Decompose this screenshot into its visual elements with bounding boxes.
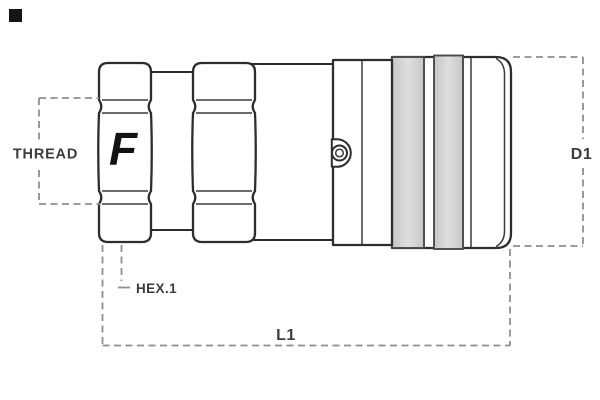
drawing-canvas: F [0,0,600,400]
hex-label: HEX.1 [136,281,177,296]
diameter-dimension: D1 [513,57,592,246]
locking-band-2 [434,56,463,250]
coupling-body: F [98,56,511,250]
corner-marker [9,9,22,22]
hex-nut-2 [192,63,256,242]
l1-label: L1 [276,327,296,344]
locking-band-1 [392,57,424,248]
body-tube-main [251,64,336,240]
hex-nut-1: F [98,63,152,242]
body-tube-between-hexes [147,72,197,230]
coupling-technical-drawing: F [0,0,600,400]
thread-label: THREAD [13,147,78,163]
pin-hole-outer [332,146,347,161]
faster-logo: F [109,123,139,175]
sleeve [332,56,511,250]
thread-dimension: THREAD [13,98,100,204]
d1-label: D1 [571,146,592,163]
hex-dimension: HEX.1 [118,245,177,296]
